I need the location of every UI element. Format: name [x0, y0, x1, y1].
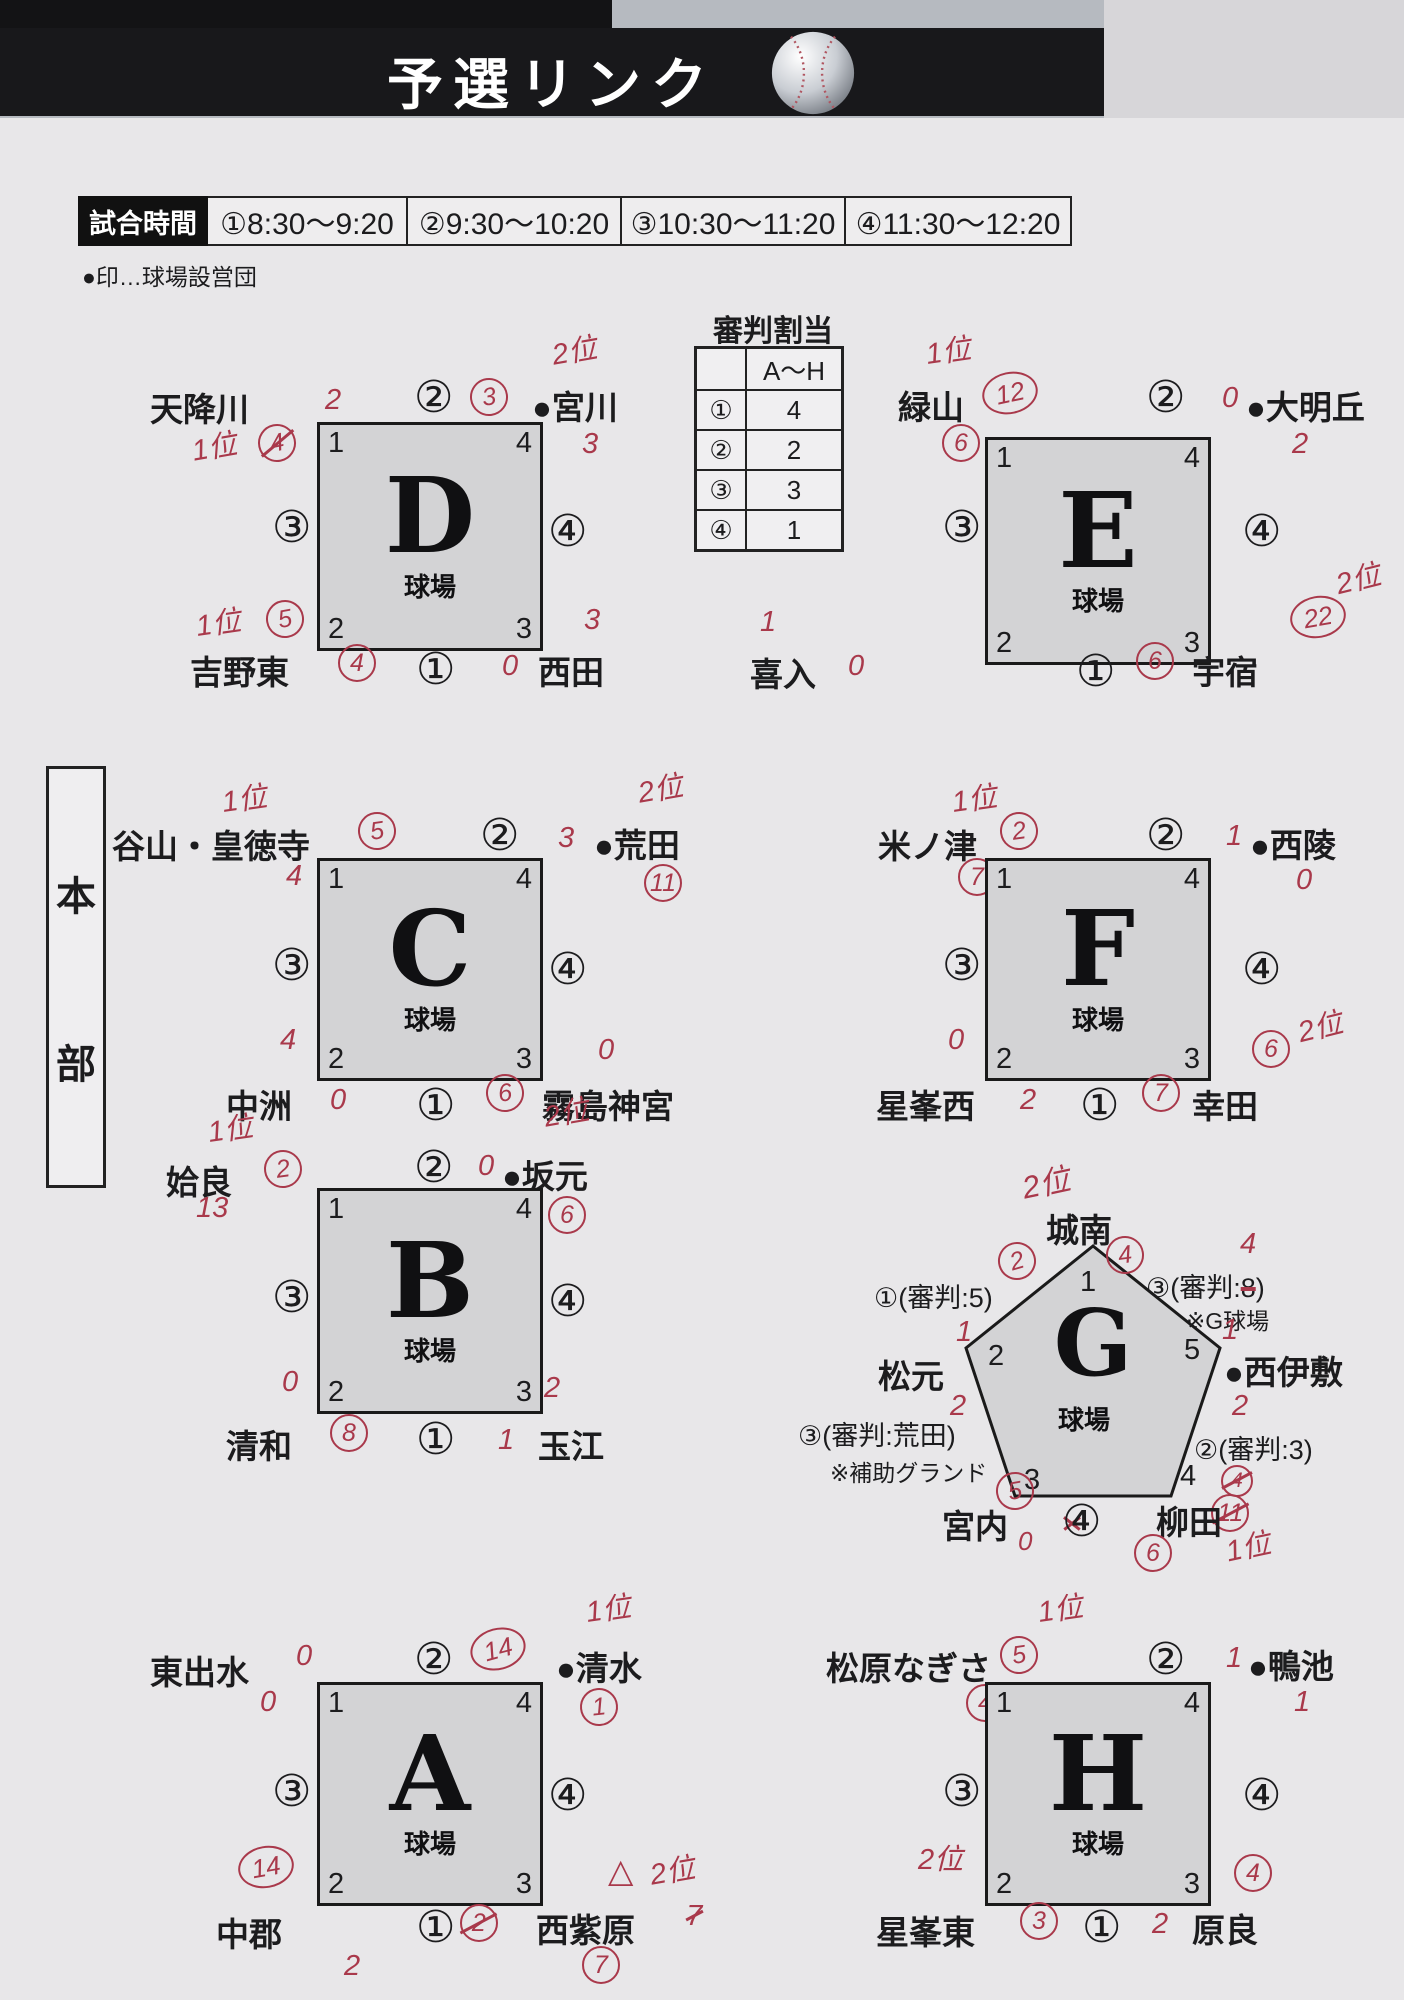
c-venue-label: 球場 — [404, 1000, 456, 1037]
d-venue-label: 球場 — [404, 567, 456, 604]
b-corner-2: 2 — [328, 1378, 344, 1407]
c-match-bottom: ① — [416, 1084, 455, 1128]
hq-char-2: 部 — [56, 1032, 96, 1090]
g-label-upper-left: ①(審判:5) — [874, 1276, 993, 1315]
b-match-right: ④ — [548, 1280, 587, 1324]
h-team-top-right: ●鴨池 — [1248, 1640, 1334, 1688]
e-score-bottom-left: 0 — [848, 652, 864, 681]
c-red-circle-tr-below: 11 — [644, 864, 682, 902]
c-match-right: ④ — [548, 948, 587, 992]
a-match-top: ② — [414, 1638, 453, 1682]
h-match-bottom: ① — [1082, 1906, 1121, 1950]
d-team-bottom-right: 西田 — [538, 646, 604, 694]
f-red-circle-br: 7 — [1142, 1074, 1180, 1112]
e-match-left: ③ — [942, 506, 981, 550]
e-rank: 1位 — [924, 335, 973, 370]
f-corner-1: 1 — [996, 865, 1012, 894]
e-score-top: 0 — [1222, 384, 1238, 413]
h-corner-4: 4 — [1184, 1689, 1200, 1718]
a-match-left: ③ — [272, 1770, 311, 1814]
g-team-bottom-right: 柳田 — [1156, 1496, 1222, 1544]
d-corner-3: 3 — [516, 615, 532, 644]
h-corner-3: 3 — [1184, 1870, 1200, 1899]
schedule-slot-1: ①8:30～9:20 — [208, 196, 408, 246]
f-team-top-right: ●西陵 — [1250, 819, 1336, 867]
g-red-circle-br-below: 6 — [1134, 1534, 1172, 1572]
b-corner-1: 1 — [328, 1195, 344, 1224]
e-team-bottom-right: 宇宿 — [1192, 646, 1258, 694]
block-a-square: 1 4 2 3 A 球場 — [317, 1682, 543, 1906]
f-rank: 1位 — [950, 783, 999, 818]
g-label-ur-post: ) — [1256, 1273, 1265, 1303]
h-match-top: ② — [1146, 1638, 1185, 1682]
g-team-top: 城南 — [1046, 1204, 1112, 1252]
c-score-br-above: 0 — [598, 1036, 614, 1065]
a-corner-3: 3 — [516, 1870, 532, 1899]
a-match-right: ④ — [548, 1774, 587, 1818]
f-letter: F — [1061, 902, 1135, 996]
d-corner-2: 2 — [328, 615, 344, 644]
baseball-icon — [770, 30, 856, 121]
b-score-top: 0 — [478, 1152, 494, 1181]
referee-row-slot: ③ — [696, 470, 746, 510]
b-letter: B — [386, 1234, 474, 1328]
c-score-left-bottom: 4 — [280, 1026, 296, 1055]
a-team-top-left: 東出水 — [150, 1646, 249, 1694]
referee-row-count: 3 — [746, 470, 842, 510]
g-label-lower-left: ③(審判:荒田) — [798, 1414, 956, 1453]
referee-row-count: 4 — [746, 390, 842, 430]
wall-corner — [1104, 0, 1404, 118]
c-corner-4: 4 — [516, 865, 532, 894]
block-f-square: 1 4 2 3 F 球場 — [985, 858, 1211, 1081]
e-match-right: ④ — [1242, 510, 1281, 554]
d-red-circle-bl: 4 — [338, 644, 376, 682]
c-match-top: ② — [480, 814, 519, 858]
e-venue-label: 球場 — [1072, 581, 1124, 618]
d-score-top-right: 3 — [582, 430, 598, 459]
e-team-top-right: ●大明丘 — [1246, 381, 1365, 429]
b-match-bottom: ① — [416, 1418, 455, 1462]
e-letter: E — [1058, 484, 1137, 578]
a-score-top-left: 0 — [296, 1642, 312, 1671]
b-score-left-bottom: 0 — [282, 1368, 298, 1397]
top-black-strip — [0, 0, 612, 28]
f-team-bottom-right: 幸田 — [1192, 1080, 1258, 1128]
referee-header-blank — [696, 348, 746, 390]
b-rank: 1位 — [206, 1113, 255, 1148]
e-corner-2: 2 — [996, 629, 1012, 658]
a-venue-label: 球場 — [404, 1824, 456, 1861]
e-score-bl-above: 1 — [760, 608, 776, 637]
d-team-bottom-left: 吉野東 — [190, 646, 289, 694]
schedule-slot-3: ③10:30～11:20 — [622, 196, 846, 246]
h-team-bottom-right: 原良 — [1192, 1904, 1258, 1952]
block-h-square: 1 4 2 3 H 球場 — [985, 1682, 1211, 1906]
e-match-top: ② — [1146, 376, 1185, 420]
f-score-top: 1 — [1226, 822, 1242, 851]
g-label-ur-pre: ③(審判: — [1146, 1273, 1241, 1303]
referee-table-title: 審判割当 — [688, 306, 858, 350]
block-b-square: 1 4 2 3 B 球場 — [317, 1188, 543, 1414]
a-score-bl-below: 2 — [344, 1952, 360, 1981]
c-score-bottom-left: 0 — [330, 1086, 346, 1115]
d-match-top: ② — [414, 376, 453, 420]
h-rank-left-bottom: 2位 — [918, 1846, 963, 1875]
d-score-top-left: 2 — [325, 386, 341, 415]
f-corner-4: 4 — [1184, 865, 1200, 894]
d-score-bottom-right-pre: 0 — [502, 652, 518, 681]
hq-char-1: 本 — [56, 864, 96, 922]
f-match-left: ③ — [942, 944, 981, 988]
g-venue-label: 球場 — [1058, 1400, 1110, 1437]
f-score-bottom-left: 2 — [1020, 1086, 1036, 1115]
b-team-bottom-left: 清和 — [226, 1420, 292, 1468]
referee-row-slot: ① — [696, 390, 746, 430]
d-team-top-left: 天降川 — [150, 383, 249, 431]
b-match-top: ② — [414, 1146, 453, 1190]
schedule-slot-2: ②9:30～10:20 — [408, 196, 622, 246]
a-corner-1: 1 — [328, 1689, 344, 1718]
d-match-right: ④ — [548, 510, 587, 554]
h-red-circle-bl: 3 — [1020, 1902, 1058, 1940]
h-team-top-left: 松原なぎさ — [826, 1642, 991, 1690]
b-team-bottom-right: 玉江 — [538, 1420, 604, 1468]
f-team-top-left: 米ノ津 — [878, 820, 977, 868]
a-team-top-right: ●清水 — [556, 1642, 642, 1690]
referee-row-count: 1 — [746, 510, 842, 550]
h-match-right: ④ — [1242, 1774, 1281, 1818]
a-rank-top-right: 1位 — [584, 1593, 633, 1628]
b-corner-3: 3 — [516, 1378, 532, 1407]
f-match-right: ④ — [1242, 948, 1281, 992]
g-red-fix: 4 — [1240, 1230, 1256, 1259]
e-red-circle-tl-below: 6 — [942, 424, 980, 462]
a-red-circle-br-below: 7 — [582, 1946, 620, 1984]
c-score-top: 3 — [558, 824, 574, 853]
e-corner-1: 1 — [996, 444, 1012, 473]
e-match-bottom: ① — [1076, 650, 1115, 694]
c-letter: C — [389, 902, 472, 996]
block-d-square: 1 4 2 3 D 球場 — [317, 422, 543, 651]
f-team-bottom-left: 星峯西 — [876, 1080, 975, 1128]
d-team-top-right: ●宮川 — [532, 381, 618, 429]
g-score-bl: 0 — [1018, 1528, 1032, 1554]
f-match-top: ② — [1146, 814, 1185, 858]
h-corner-1: 1 — [996, 1689, 1012, 1718]
g-crossed-circle-above: 4 — [1221, 1465, 1253, 1497]
page-title: 予選リンク — [0, 40, 1104, 121]
e-red-circle-br: 6 — [1136, 642, 1174, 680]
headquarters-box: 本 部 — [46, 766, 106, 1188]
c-score-left-top: 4 — [286, 862, 302, 891]
f-score-tr-below: 0 — [1296, 866, 1312, 895]
h-corner-2: 2 — [996, 1870, 1012, 1899]
d-score-bottom-right-above: 3 — [584, 606, 600, 635]
d-match-left: ③ — [272, 506, 311, 550]
b-red-tl-below: 13 — [196, 1194, 228, 1223]
d-match-bottom: ① — [416, 648, 455, 692]
f-corner-3: 3 — [1184, 1045, 1200, 1074]
schedule-bar: 試合時間 ①8:30～9:20 ②9:30～10:20 ③10:30～11:20… — [78, 196, 1072, 246]
h-score-top: 1 — [1226, 1644, 1242, 1673]
h-score-bottom: 2 — [1152, 1910, 1168, 1939]
c-corner-3: 3 — [516, 1045, 532, 1074]
g-team-right: ●西伊敷 — [1224, 1346, 1343, 1394]
a-letter: A — [390, 1727, 471, 1821]
schedule-slot-4: ④11:30～12:20 — [846, 196, 1072, 246]
f-match-bottom: ① — [1080, 1084, 1119, 1128]
b-venue-label: 球場 — [404, 1331, 456, 1368]
g-score-left-above: 1 — [956, 1318, 972, 1347]
f-venue-label: 球場 — [1072, 1000, 1124, 1037]
d-rank-bottom-left: 1位 — [194, 607, 243, 642]
h-score-tr-below: 1 — [1294, 1688, 1310, 1717]
g-match-bottom: ④ — [1062, 1500, 1101, 1544]
d-letter: D — [385, 469, 475, 563]
f-score-left-bottom: 0 — [948, 1026, 964, 1055]
c-corner-2: 2 — [328, 1045, 344, 1074]
g-label-lower-right: ②(審判:3) — [1194, 1428, 1313, 1467]
a-corner-2: 2 — [328, 1870, 344, 1899]
tournament-poster: 予選リンク 試合時間 ①8:30～9:20 ②9:30～10:20 ③10:30… — [0, 0, 1404, 2000]
f-corner-2: 2 — [996, 1045, 1012, 1074]
d-corner-1: 1 — [328, 429, 344, 458]
referee-row-count: 2 — [746, 430, 842, 470]
h-team-bottom-left: 星峯東 — [876, 1906, 975, 1954]
h-rank: 1位 — [1036, 1593, 1085, 1628]
e-team-top-left: 緑山 — [898, 381, 964, 429]
block-c-square: 1 4 2 3 C 球場 — [317, 858, 543, 1081]
g-score-right-below: 2 — [1232, 1392, 1248, 1421]
g-team-left: 松元 — [878, 1350, 944, 1398]
c-match-left: ③ — [272, 944, 311, 988]
c-team-top-right: ●荒田 — [594, 819, 680, 867]
d-corner-4: 4 — [516, 429, 532, 458]
referee-row-slot: ② — [696, 430, 746, 470]
a-crossed-circle-bl: 2 — [460, 1904, 498, 1942]
a-match-bottom: ① — [416, 1906, 455, 1950]
legend-note: ●印…球場設営団 — [82, 258, 257, 292]
a-score-tl-below: 0 — [260, 1688, 276, 1717]
a-team-bottom-right: 西紫原 — [536, 1904, 635, 1952]
h-venue-label: 球場 — [1072, 1824, 1124, 1861]
h-letter: H — [1049, 1727, 1147, 1821]
a-crossed-score-bottom: 7 — [686, 1900, 702, 1932]
h-red-circle-br-above: 4 — [1234, 1854, 1272, 1892]
referee-row-slot: ④ — [696, 510, 746, 550]
block-e-square: 1 4 2 3 E 球場 — [985, 437, 1211, 665]
referee-header-range: A～H — [746, 348, 842, 390]
e-score-top-right: 2 — [1292, 430, 1308, 459]
b-red-circle-tr-below: 6 — [548, 1196, 586, 1234]
f-red-circle-br-above: 6 — [1252, 1030, 1290, 1068]
c-corner-1: 1 — [328, 865, 344, 894]
schedule-label: 試合時間 — [78, 196, 208, 246]
a-triangle-mark: △ — [608, 1854, 633, 1887]
a-corner-4: 4 — [516, 1689, 532, 1718]
b-score-bottom: 1 — [498, 1426, 514, 1455]
g-team-bottom-left: 宮内 — [942, 1500, 1008, 1548]
referee-table: A～H ① 4 ② 2 ③ 3 ④ 1 — [694, 346, 844, 552]
b-corner-4: 4 — [516, 1195, 532, 1224]
b-match-left: ③ — [272, 1276, 311, 1320]
c-rank: 1位 — [220, 783, 269, 818]
g-note-lower-left: ※補助グランド — [830, 1454, 987, 1488]
a-team-bottom-left: 中郡 — [216, 1908, 282, 1956]
g-vertex-5: 5 — [1184, 1336, 1200, 1365]
g-score-right-above: 1 — [1222, 1316, 1238, 1345]
g-label-ur-struck: 8 — [1241, 1273, 1256, 1303]
b-score-br-above: 2 — [544, 1374, 560, 1403]
e-team-bottom-left: 喜入 — [750, 648, 816, 696]
g-letter: G — [1033, 1302, 1153, 1385]
g-label-upper-right: ③(審判:8) — [1146, 1266, 1265, 1305]
c-team-top-left: 谷山・皇徳寺 — [112, 820, 310, 868]
e-corner-4: 4 — [1184, 444, 1200, 473]
g-vertex-2: 2 — [988, 1342, 1004, 1371]
b-red-circle-bl: 8 — [330, 1414, 368, 1452]
h-match-left: ③ — [942, 1770, 981, 1814]
